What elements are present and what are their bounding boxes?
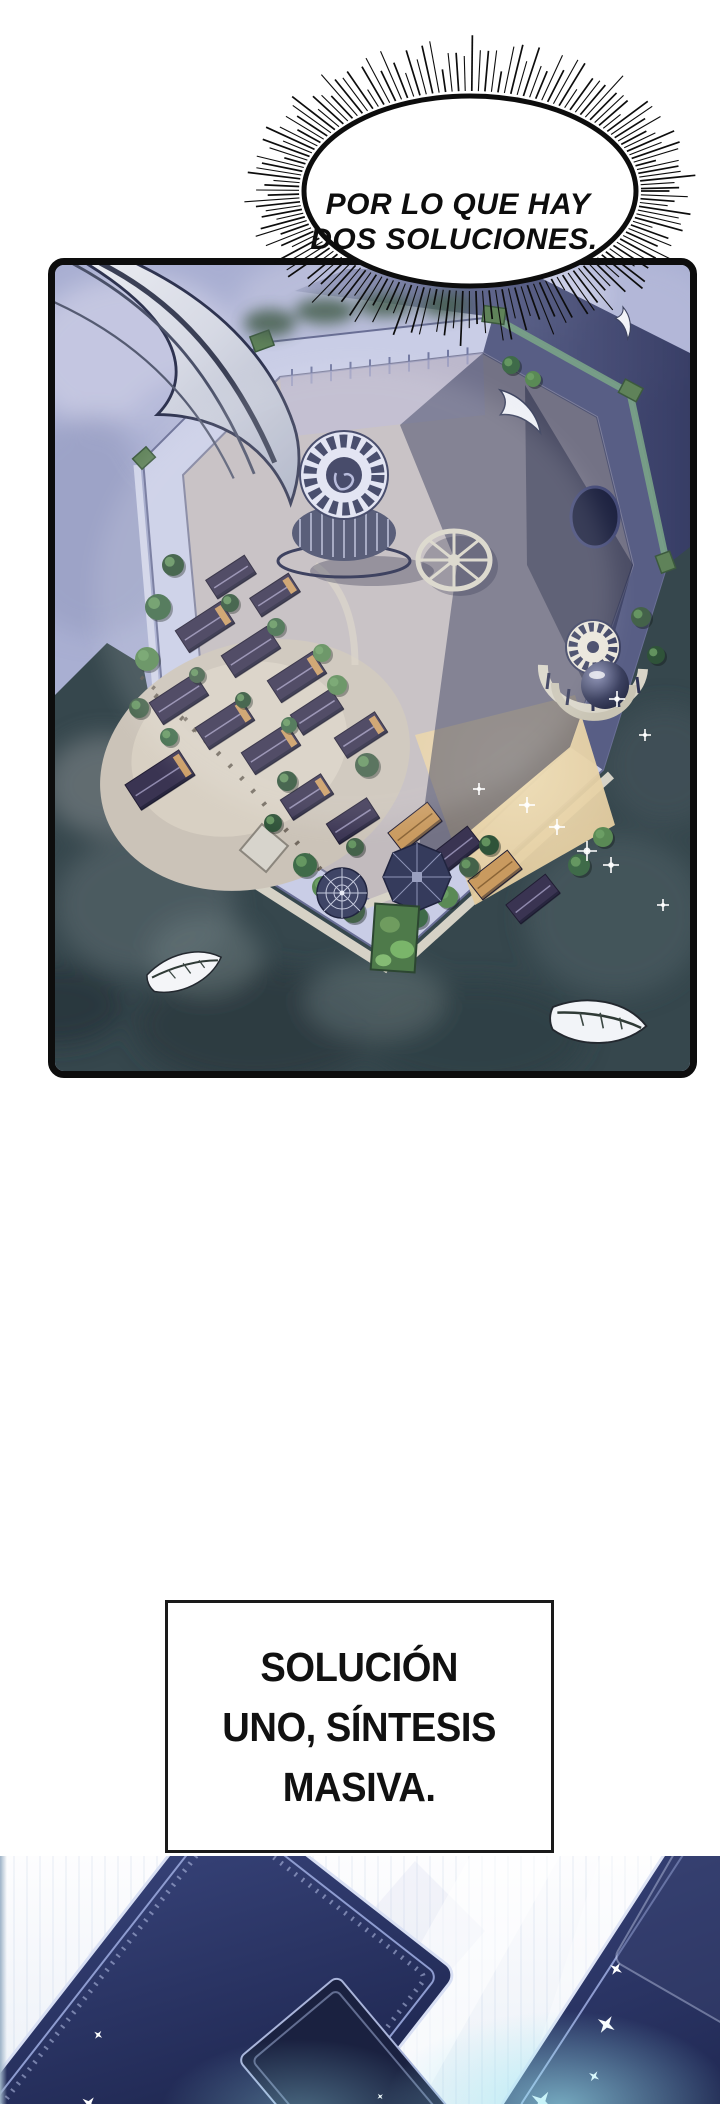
gate-tower [371, 904, 419, 973]
map-panel [48, 258, 697, 1078]
caption-line-2: UNO, SÍNTESIS [223, 1697, 497, 1757]
comic-page: POR LO QUE HAY DOS SOLUCIONES. SOLUCIÓN … [0, 0, 720, 2104]
speech-bubble: POR LO QUE HAY DOS SOLUCIONES. [180, 25, 700, 355]
speech-bubble-line-2: DOS SOLUCIONES. [310, 223, 598, 256]
bottom-art [0, 1856, 720, 2104]
caption-line-1: SOLUCIÓN [261, 1637, 459, 1697]
edge-strip [0, 1856, 7, 2104]
caption-line-3: MASIVA. [283, 1757, 436, 1817]
speech-bubble-line-1: POR LO QUE HAY [326, 188, 593, 221]
light-glow [95, 365, 615, 825]
web-dome-pavilion [317, 868, 367, 918]
caption-box: SOLUCIÓN UNO, SÍNTESIS MASIVA. [165, 1600, 554, 1853]
panel-illustration [55, 265, 690, 1071]
octagon-pavilion [383, 843, 451, 911]
